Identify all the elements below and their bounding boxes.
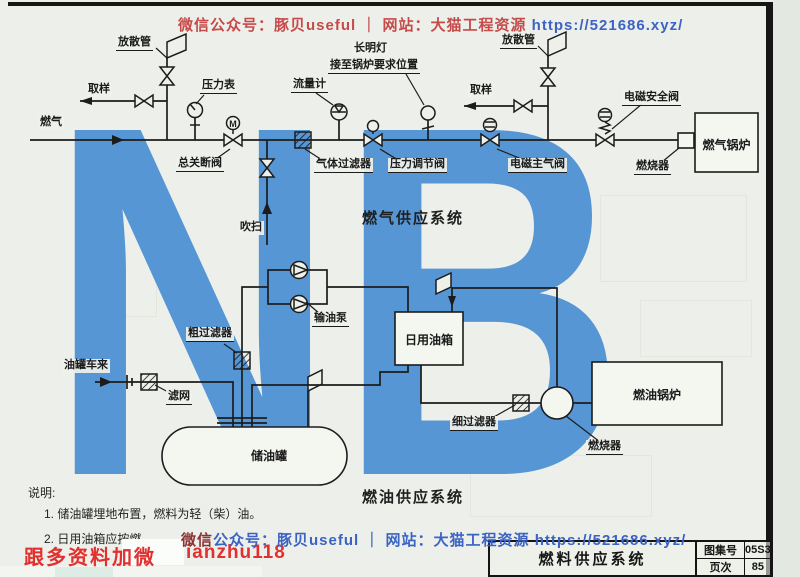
label-gas-filter: 气体过滤器 bbox=[314, 158, 373, 173]
label-coarse-filter: 粗过滤器 bbox=[186, 327, 234, 342]
motor-valve-letter: M bbox=[229, 119, 237, 129]
atlas-number-label: 图集号 bbox=[697, 542, 745, 559]
label-flow-meter: 流量计 bbox=[291, 78, 328, 93]
label-vent-right: 放散管 bbox=[500, 34, 537, 49]
label-gas-inlet: 燃气 bbox=[38, 116, 64, 130]
label-main-shutoff-valve: 总关断阀 bbox=[176, 157, 224, 172]
label-pressure-regulator: 压力调节阀 bbox=[388, 158, 447, 173]
top-watermark-url: https://521686.xyz/ bbox=[527, 17, 684, 34]
atlas-number-value: 05S3 bbox=[745, 542, 771, 559]
scanned-drawing-page: NB bbox=[0, 0, 800, 577]
bottom-watermark-blue: 公众号：豚贝useful ｜ 网站：大猫工程资源 bbox=[213, 532, 530, 549]
label-purge: 吹扫 bbox=[238, 221, 264, 235]
label-oil-pump: 输油泵 bbox=[312, 312, 349, 327]
label-strainer: 滤网 bbox=[166, 390, 192, 405]
label-vent-left: 放散管 bbox=[116, 36, 153, 51]
label-pilot-light: 长明灯 bbox=[352, 42, 389, 56]
label-sample-right: 取样 bbox=[468, 84, 494, 98]
label-solenoid-safety-valve: 电磁安全阀 bbox=[622, 91, 681, 106]
label-oil-boiler: 燃油锅炉 bbox=[624, 386, 690, 403]
label-pressure-gauge: 压力表 bbox=[200, 79, 237, 94]
notes-heading: 说明: bbox=[28, 484, 55, 501]
label-storage-tank: 储油罐 bbox=[240, 447, 298, 464]
label-solenoid-main-valve: 电磁主气阀 bbox=[508, 158, 567, 173]
page-number-label: 页次 bbox=[697, 559, 745, 575]
note-item-1: 1. 储油罐埋地布置，燃料为轻（柴）油。 bbox=[44, 505, 261, 522]
label-gas-boiler: 燃气锅炉 bbox=[697, 136, 756, 153]
label-oil-burner: 燃烧器 bbox=[586, 440, 623, 455]
label-daily-tank: 日用油箱 bbox=[397, 331, 461, 348]
promo-text-left: 跟多资料加微 bbox=[24, 541, 156, 570]
label-gas-burner: 燃烧器 bbox=[634, 160, 671, 175]
label-tanker: 油罐车来 bbox=[62, 359, 110, 373]
label-sample-left: 取样 bbox=[86, 83, 112, 97]
bottom-watermark: 微信公众号：豚贝useful ｜ 网站：大猫工程资源 https://52168… bbox=[181, 529, 686, 550]
top-watermark: 微信公众号：豚贝useful ｜ 网站：大猫工程资源 https://52168… bbox=[178, 14, 683, 35]
gas-system-title: 燃气供应系统 bbox=[362, 207, 464, 228]
oil-system-title: 燃油供应系统 bbox=[362, 486, 464, 507]
label-fine-filter: 细过滤器 bbox=[450, 416, 498, 431]
label-pilot-light-note: 接至锅炉要求位置 bbox=[328, 59, 420, 74]
bottom-watermark-url: https://521686.xyz/ bbox=[530, 532, 687, 549]
top-watermark-red: 微信公众号：豚贝useful ｜ 网站：大猫工程资源 bbox=[178, 17, 527, 34]
bottom-watermark-head: 微信 bbox=[181, 532, 213, 549]
page-number-value: 85 bbox=[745, 559, 771, 575]
